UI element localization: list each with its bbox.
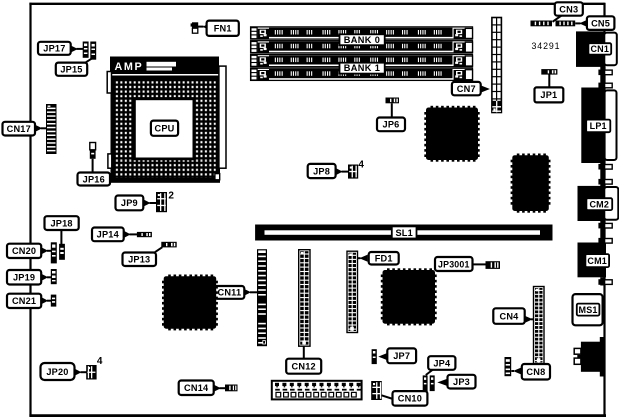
svg-text:CN17: CN17 (7, 124, 31, 134)
svg-text:JP15: JP15 (60, 65, 82, 75)
svg-text:LP1: LP1 (590, 121, 607, 131)
svg-text:CM1: CM1 (587, 256, 607, 266)
svg-text:CN20: CN20 (12, 246, 36, 256)
svg-text:JP9: JP9 (121, 198, 138, 208)
svg-text:JP3: JP3 (453, 377, 470, 387)
svg-text:JP7: JP7 (393, 351, 410, 361)
svg-text:BANK 0: BANK 0 (344, 35, 381, 45)
svg-text:CN21: CN21 (12, 296, 36, 306)
svg-text:CN7: CN7 (457, 84, 476, 94)
svg-text:CN12: CN12 (292, 362, 316, 372)
svg-text:JP4: JP4 (433, 358, 451, 368)
svg-text:JP16: JP16 (83, 174, 105, 184)
svg-text:BANK 1: BANK 1 (344, 63, 381, 73)
svg-text:JP17: JP17 (43, 44, 65, 54)
svg-text:JP14: JP14 (97, 230, 120, 240)
svg-text:JP13: JP13 (128, 255, 150, 265)
svg-text:JP8: JP8 (313, 166, 330, 176)
svg-text:CN8: CN8 (526, 367, 545, 377)
svg-text:CN10: CN10 (398, 394, 422, 404)
svg-text:CN4: CN4 (500, 311, 520, 321)
svg-text:CN1: CN1 (590, 44, 609, 54)
svg-text:CN3: CN3 (559, 4, 578, 14)
svg-text:CN14: CN14 (184, 383, 209, 393)
svg-text:MS1: MS1 (579, 305, 598, 315)
svg-text:JP1: JP1 (540, 90, 557, 100)
svg-text:2: 2 (168, 190, 174, 201)
svg-text:JP20: JP20 (46, 367, 68, 377)
svg-text:JP6: JP6 (383, 120, 400, 130)
svg-text:FD1: FD1 (375, 254, 393, 264)
svg-text:4: 4 (358, 159, 364, 170)
svg-text:4: 4 (97, 356, 103, 367)
svg-text:SL1: SL1 (395, 228, 412, 238)
svg-text:JP3001: JP3001 (438, 259, 470, 269)
svg-text:CN5: CN5 (591, 18, 610, 28)
svg-text:CM2: CM2 (589, 199, 609, 209)
svg-text:AMP: AMP (115, 61, 144, 73)
svg-text:JP19: JP19 (13, 273, 35, 283)
svg-text:CN11: CN11 (218, 288, 242, 298)
svg-text:CPU: CPU (155, 124, 175, 134)
svg-text:JP18: JP18 (50, 218, 72, 228)
svg-text:FN1: FN1 (214, 24, 232, 34)
svg-text:34291: 34291 (532, 41, 561, 51)
